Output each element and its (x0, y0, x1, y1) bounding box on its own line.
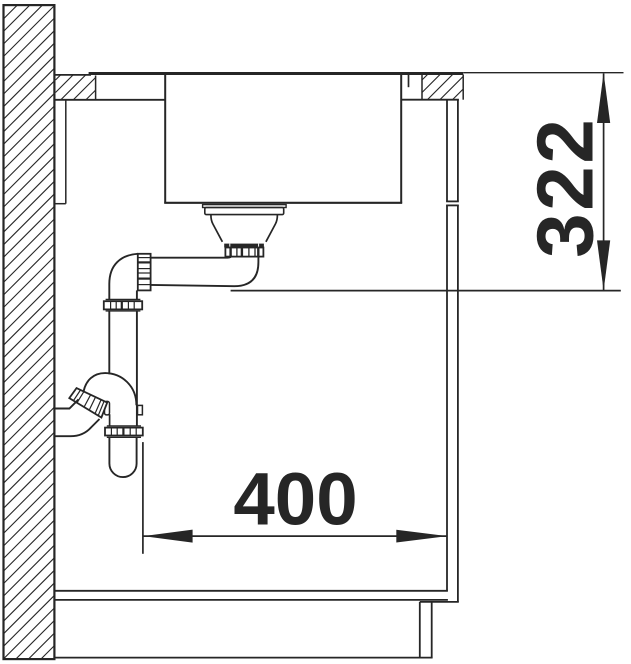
svg-text:400: 400 (233, 458, 357, 541)
svg-text:322: 322 (520, 117, 609, 258)
